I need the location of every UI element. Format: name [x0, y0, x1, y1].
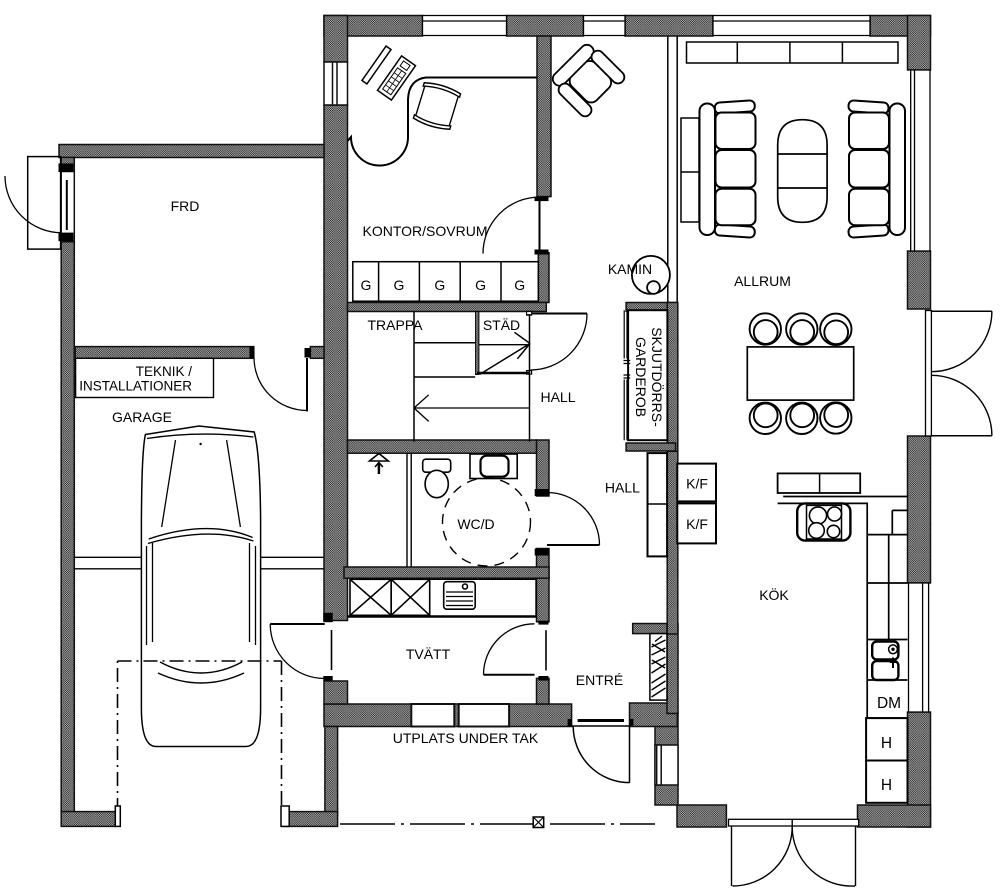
- svg-text:KONTOR/SOVRUM: KONTOR/SOVRUM: [363, 223, 488, 239]
- svg-text:ENTRÉ: ENTRÉ: [576, 672, 623, 688]
- svg-text:WC/D: WC/D: [457, 516, 494, 532]
- svg-text:SKJUTDÖRRS-GARDEROB: SKJUTDÖRRS-GARDEROB: [633, 327, 666, 427]
- svg-text:GARAGE: GARAGE: [112, 409, 172, 425]
- svg-text:STÄD: STÄD: [483, 317, 520, 333]
- svg-text:G: G: [361, 277, 372, 293]
- svg-text:K/F: K/F: [686, 516, 708, 532]
- svg-text:FRD: FRD: [171, 198, 200, 214]
- svg-text:K/F: K/F: [686, 476, 708, 492]
- svg-text:G: G: [475, 277, 486, 293]
- svg-text:KAMIN: KAMIN: [608, 261, 652, 277]
- svg-text:TVÄTT: TVÄTT: [406, 646, 451, 662]
- svg-text:H: H: [881, 735, 892, 752]
- svg-text:HALL: HALL: [605, 480, 640, 496]
- svg-text:KÖK: KÖK: [759, 586, 789, 603]
- svg-text:H: H: [881, 777, 892, 794]
- svg-text:G: G: [394, 277, 405, 293]
- svg-text:ALLRUM: ALLRUM: [734, 273, 791, 289]
- svg-text:G: G: [434, 277, 445, 293]
- svg-text:TEKNIK /: TEKNIK /: [136, 364, 193, 379]
- svg-text:G: G: [514, 277, 525, 293]
- svg-text:HALL: HALL: [540, 389, 575, 405]
- svg-text:INSTALLATIONER: INSTALLATIONER: [79, 379, 192, 394]
- svg-text:TRAPPA: TRAPPA: [368, 317, 424, 333]
- svg-text:DM: DM: [877, 695, 901, 712]
- svg-text:UTPLATS UNDER TAK: UTPLATS UNDER TAK: [393, 730, 539, 746]
